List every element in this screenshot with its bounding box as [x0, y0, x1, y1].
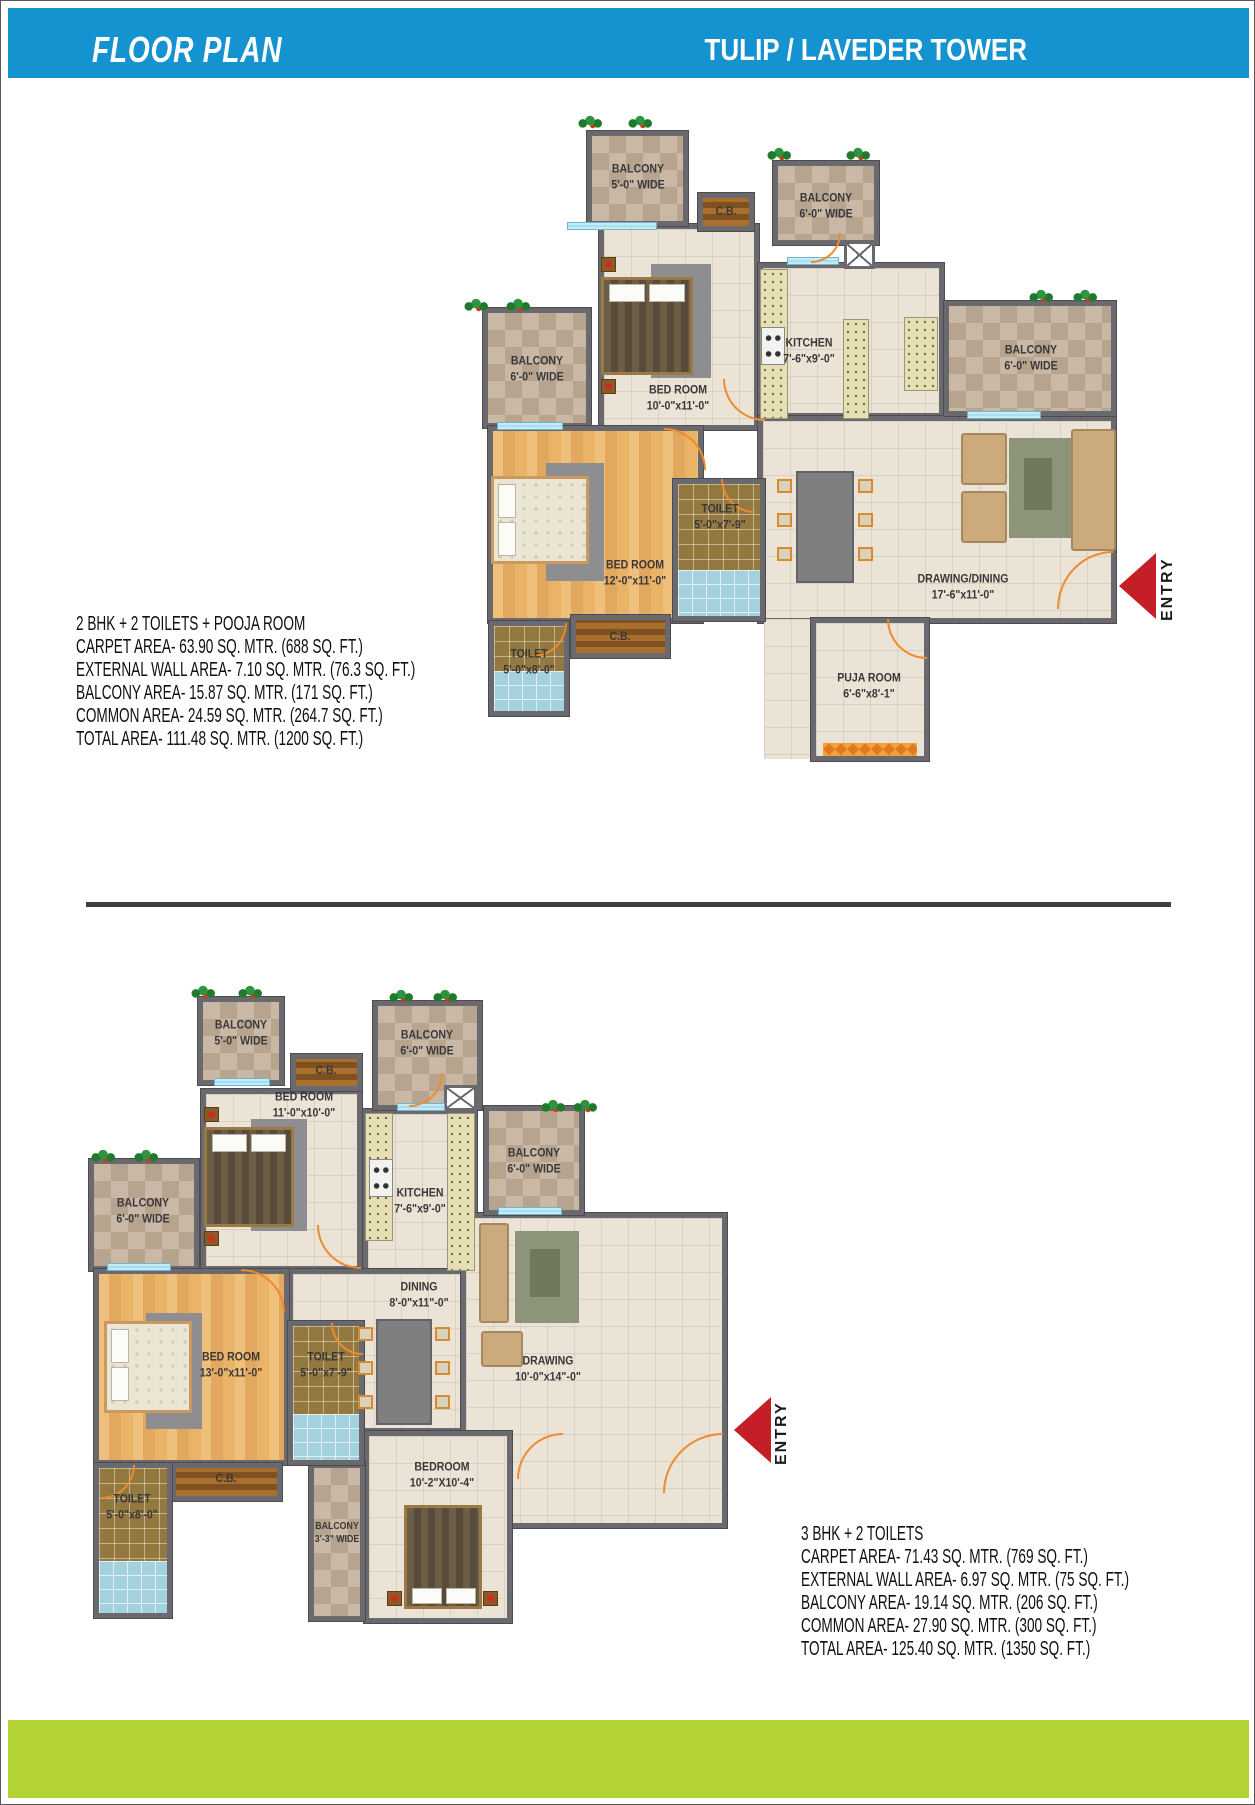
- pillow: [498, 522, 516, 556]
- section-divider: [86, 902, 1171, 907]
- specs-line: COMMON AREA- 27.90 SQ. MTR. (300 SQ. FT.…: [801, 1615, 1129, 1638]
- specs-line: BALCONY AREA- 15.87 SQ. MTR. (171 SQ. FT…: [76, 682, 415, 705]
- room-name: TOILET: [300, 1349, 351, 1365]
- label-bedroom1: BED ROOM10'-0"x11'-0": [647, 382, 710, 413]
- specs-line: CARPET AREA- 63.90 SQ. MTR. (688 SQ. FT.…: [76, 636, 415, 659]
- chair-icon: [358, 1395, 373, 1409]
- living-rug: [1009, 438, 1071, 538]
- room-name: C.B.: [715, 204, 736, 220]
- tower-title: TULIP / LAVEDER TOWER: [704, 34, 1027, 65]
- label-cb-bottom: C.B.: [609, 629, 630, 645]
- pillow: [111, 1367, 129, 1401]
- specs-title: 3 BHK + 2 TOILETS: [801, 1523, 1129, 1546]
- bed-icon: [601, 277, 693, 375]
- room-name: DRAWING: [515, 1353, 581, 1369]
- label-toilet1: TOILET5'-0"x7'-9": [694, 501, 745, 532]
- plant-icon: [1029, 289, 1053, 303]
- kitchen-counter: [843, 319, 869, 419]
- room-dims: 17'-6"x11'-0": [918, 587, 1009, 603]
- label-balcony-right: BALCONY6'-0" WIDE: [507, 1145, 560, 1176]
- bed-icon: [204, 1127, 294, 1227]
- plant-icon: [767, 147, 791, 161]
- room-dims: 5'-0"x8'-0": [503, 662, 554, 678]
- pillow: [111, 1329, 129, 1363]
- room-name: BALCONY: [510, 353, 563, 369]
- entry-label-2bhk: ENTRY: [1159, 557, 1177, 621]
- chair-icon: [858, 547, 873, 561]
- chair-icon: [435, 1395, 450, 1409]
- room-name: BALCONY: [400, 1027, 453, 1043]
- stove-icon: [369, 1159, 393, 1197]
- kitchen-counter: [447, 1113, 475, 1271]
- room-dims: 12'-0"x11'-0": [604, 573, 667, 589]
- sofa-icon: [479, 1223, 509, 1323]
- room-dims: 6'-0" WIDE: [507, 1161, 560, 1177]
- room-dims: 3'-3" WIDE: [315, 1533, 359, 1546]
- room-dims: 6'-0" WIDE: [1004, 358, 1057, 374]
- flower-pot: [601, 257, 616, 272]
- room-dims: 5'-0"x7'-9": [694, 517, 745, 533]
- room-name: BALCONY: [116, 1195, 169, 1211]
- chair-icon: [435, 1361, 450, 1375]
- entry-arrow-icon: [1119, 553, 1156, 619]
- label-balcony-top-left: BALCONY5'-0" WIDE: [214, 1017, 267, 1048]
- rug-center: [1024, 458, 1053, 510]
- sofa-icon: [961, 491, 1007, 543]
- specs-line: COMMON AREA- 24.59 SQ. MTR. (264.7 SQ. F…: [76, 705, 415, 728]
- chair-icon: [858, 479, 873, 493]
- specs-title: 2 BHK + 2 TOILETS + POOJA ROOM: [76, 613, 415, 636]
- plant-icon: [628, 115, 652, 129]
- room-name: C.B.: [215, 1471, 236, 1487]
- flower-pot: [204, 1231, 219, 1246]
- page-title: FLOOR PLAN: [92, 32, 282, 68]
- footer-bar: [8, 1720, 1249, 1798]
- plant-icon: [506, 298, 530, 312]
- room-dims: 6'-0" WIDE: [116, 1211, 169, 1227]
- plant-icon: [578, 115, 602, 129]
- plant-icon: [389, 989, 413, 1003]
- pillow: [446, 1588, 476, 1604]
- dining-table-icon: [376, 1319, 432, 1425]
- room-name: DRAWING/DINING: [918, 571, 1009, 587]
- window: [107, 1263, 171, 1271]
- room-name: BALCONY: [799, 190, 852, 206]
- label-drawing: DRAWING10'-0"x14"-0": [515, 1353, 581, 1384]
- dining-table-icon: [796, 471, 854, 583]
- room-name: DINING: [389, 1279, 448, 1295]
- plant-icon: [464, 298, 488, 312]
- specs-line: EXTERNAL WALL AREA- 6.97 SQ. MTR. (75 SQ…: [801, 1569, 1129, 1592]
- specs-line: EXTERNAL WALL AREA- 7.10 SQ. MTR. (76.3 …: [76, 659, 415, 682]
- room-dims: 11'-0"x10'-0": [273, 1105, 336, 1121]
- chair-icon: [858, 513, 873, 527]
- window: [967, 411, 1041, 419]
- plant-icon: [1073, 289, 1097, 303]
- room-dims: 5'-0"x8'-0": [106, 1507, 157, 1523]
- label-bedroom1: BED ROOM11'-0"x10'-0": [273, 1089, 336, 1120]
- room-name: TOILET: [694, 501, 745, 517]
- plant-icon: [433, 989, 457, 1003]
- room-name: KITCHEN: [394, 1185, 445, 1201]
- chair-icon: [777, 479, 792, 493]
- label-toilet2: TOILET5'-0"x8'-0": [503, 646, 554, 677]
- toilet1-wet-area: [678, 570, 760, 616]
- toilet1-wet-area: [293, 1414, 359, 1460]
- label-balcony-left: BALCONY6'-0" WIDE: [116, 1195, 169, 1226]
- chair-icon: [358, 1361, 373, 1375]
- room-name: BED ROOM: [200, 1349, 263, 1365]
- pillow: [609, 284, 645, 302]
- header-bar: FLOOR PLAN TULIP / LAVEDER TOWER: [8, 8, 1249, 78]
- label-toilet1: TOILET5'-0"x7'-9": [300, 1349, 351, 1380]
- flower-pot: [601, 379, 616, 394]
- room-name: BALCONY: [315, 1520, 359, 1533]
- room-dims: 7'-6"x9'-0": [783, 351, 834, 367]
- room-name: PUJA ROOM: [837, 670, 901, 686]
- label-bedroom2: BED ROOM13'-0"x11'-0": [200, 1349, 263, 1380]
- room-dims: 7'-6"x9'-0": [394, 1201, 445, 1217]
- room-dims: 5'-0" WIDE: [214, 1033, 267, 1049]
- window: [498, 1207, 562, 1215]
- specs-2bhk: 2 BHK + 2 TOILETS + POOJA ROOM CARPET AR…: [76, 613, 415, 751]
- room-dims: 5'-0" WIDE: [611, 177, 664, 193]
- chair-icon: [777, 513, 792, 527]
- room-name: TOILET: [503, 646, 554, 662]
- stove-icon: [761, 327, 785, 365]
- flower-pot: [483, 1591, 498, 1606]
- room-dims: 6'-6"x8'-1": [837, 686, 901, 702]
- room-name: KITCHEN: [783, 335, 834, 351]
- label-cb-top: C.B.: [715, 204, 736, 220]
- shaft-icon: [444, 1085, 477, 1111]
- label-bedroom3: BEDROOM10'-2"X10'-4": [410, 1459, 474, 1490]
- plant-icon: [541, 1099, 565, 1113]
- room-name: BALCONY: [611, 161, 664, 177]
- specs-line: TOTAL AREA- 111.48 SQ. MTR. (1200 SQ. FT…: [76, 728, 415, 751]
- room-name: BEDROOM: [410, 1459, 474, 1475]
- pillow: [412, 1588, 442, 1604]
- window: [497, 422, 563, 430]
- specs-3bhk: 3 BHK + 2 TOILETS CARPET AREA- 71.43 SQ.…: [801, 1523, 1129, 1661]
- room-dims: 10'-2"X10'-4": [410, 1475, 474, 1491]
- room-dims: 10'-0"x11'-0": [647, 398, 710, 414]
- specs-line: TOTAL AREA- 125.40 SQ. MTR. (1350 SQ. FT…: [801, 1638, 1129, 1661]
- label-balcony-top-right: BALCONY6'-0" WIDE: [799, 190, 852, 221]
- plant-icon: [191, 985, 215, 999]
- plant-icon: [91, 1149, 115, 1163]
- living-rug: [515, 1231, 579, 1323]
- hall-to-puja-2bhk: [764, 619, 811, 759]
- room-name: BALCONY: [507, 1145, 560, 1161]
- room-name: TOILET: [106, 1491, 157, 1507]
- label-drawing-dining: DRAWING/DINING17'-6"x11'-0": [918, 571, 1009, 602]
- flower-pot: [387, 1591, 402, 1606]
- label-balcony-top-mid: BALCONY6'-0" WIDE: [400, 1027, 453, 1058]
- label-cb-bottom: C.B.: [215, 1471, 236, 1487]
- room-dims: 5'-0"x7'-9": [300, 1365, 351, 1381]
- label-balcony-right: BALCONY6'-0" WIDE: [1004, 342, 1057, 373]
- pillow: [498, 484, 516, 518]
- room-name: BED ROOM: [273, 1089, 336, 1105]
- pillow: [251, 1134, 286, 1152]
- room-name: BALCONY: [1004, 342, 1057, 358]
- flower-pot: [204, 1107, 219, 1122]
- label-kitchen: KITCHEN7'-6"x9'-0": [783, 335, 834, 366]
- room-dims: 6'-0" WIDE: [510, 369, 563, 385]
- bed-icon: [104, 1321, 192, 1413]
- toilet2-wet-area: [99, 1561, 167, 1613]
- window: [214, 1078, 270, 1086]
- plant-icon: [134, 1149, 158, 1163]
- room-dims: 8'-0"x11"-0": [389, 1295, 448, 1311]
- label-toilet2: TOILET5'-0"x8'-0": [106, 1491, 157, 1522]
- room-name: BALCONY: [214, 1017, 267, 1033]
- room-dims: 10'-0"x14"-0": [515, 1369, 581, 1385]
- label-dining: DINING8'-0"x11"-0": [389, 1279, 448, 1310]
- label-kitchen: KITCHEN7'-6"x9'-0": [394, 1185, 445, 1216]
- label-balcony-small: BALCONY3'-3" WIDE: [315, 1520, 359, 1546]
- plant-icon: [573, 1099, 597, 1113]
- room-name: BED ROOM: [604, 557, 667, 573]
- plant-icon: [846, 147, 870, 161]
- pillow: [212, 1134, 247, 1152]
- label-puja-room: PUJA ROOM6'-6"x8'-1": [837, 670, 901, 701]
- label-bedroom2: BED ROOM12'-0"x11'-0": [604, 557, 667, 588]
- room-dims: 6'-0" WIDE: [799, 206, 852, 222]
- room-dims: 13'-0"x11'-0": [200, 1365, 263, 1381]
- rug-center: [530, 1249, 559, 1297]
- sofa-icon: [1071, 429, 1116, 551]
- entry-arrow-icon: [734, 1397, 771, 1463]
- window: [567, 222, 657, 230]
- label-balcony-top-left: BALCONY5'-0" WIDE: [611, 161, 664, 192]
- shaft-icon: [844, 241, 875, 269]
- sofa-icon: [961, 433, 1007, 485]
- entry-label-3bhk: ENTRY: [773, 1401, 791, 1465]
- room-name: C.B.: [315, 1063, 336, 1079]
- label-balcony-left: BALCONY6'-0" WIDE: [510, 353, 563, 384]
- specs-line: BALCONY AREA- 19.14 SQ. MTR. (206 SQ. FT…: [801, 1592, 1129, 1615]
- pillow: [649, 284, 685, 302]
- plant-icon: [238, 985, 262, 999]
- kitchen-counter: [904, 317, 938, 391]
- chair-icon: [435, 1327, 450, 1341]
- puja-shrine: [823, 743, 917, 756]
- room-name: BED ROOM: [647, 382, 710, 398]
- bed-icon: [491, 476, 589, 564]
- chair-icon: [777, 547, 792, 561]
- room-dims: 6'-0" WIDE: [400, 1043, 453, 1059]
- specs-line: CARPET AREA- 71.43 SQ. MTR. (769 SQ. FT.…: [801, 1546, 1129, 1569]
- floor-plan-page: FLOOR PLAN TULIP / LAVEDER TOWER: [0, 0, 1255, 1805]
- room-name: C.B.: [609, 629, 630, 645]
- label-cb-top: C.B.: [315, 1063, 336, 1079]
- bed-icon: [404, 1505, 482, 1609]
